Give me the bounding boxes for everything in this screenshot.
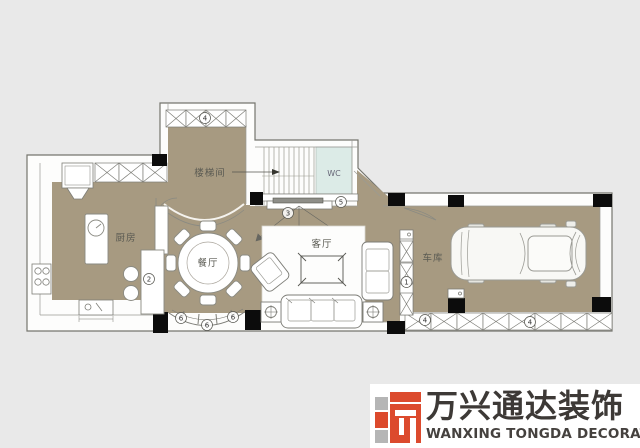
dining-chair bbox=[166, 255, 176, 271]
floor-plan-page: 厨房 餐厅 客厅 车库 楼梯间 WC 4 3 5 2 1 6 6 6 4 4 万… bbox=[0, 0, 640, 448]
dining-label: 餐厅 bbox=[197, 257, 218, 269]
garage-cabinet-strip bbox=[400, 230, 413, 315]
marker-bar-counter: 2 bbox=[144, 274, 155, 285]
marker-tower-window: 4 bbox=[200, 113, 211, 124]
dining-chair bbox=[200, 295, 216, 305]
marker-wc-door: 5 bbox=[336, 197, 347, 208]
stairwell-label: 楼梯间 bbox=[194, 167, 226, 179]
sofa bbox=[281, 295, 362, 328]
marker-bay-right: 6 bbox=[228, 312, 239, 323]
tv bbox=[273, 198, 323, 203]
garage-fixture bbox=[448, 289, 464, 298]
svg-text:6: 6 bbox=[231, 314, 236, 322]
brand-name-en: WANXING TONGDA DECORATION bbox=[426, 426, 638, 442]
svg-text:1: 1 bbox=[404, 279, 408, 287]
bar-stool bbox=[124, 286, 139, 301]
stove bbox=[32, 264, 51, 294]
svg-text:4: 4 bbox=[423, 317, 428, 325]
brand-name-cn: 万兴通达装饰 bbox=[426, 388, 638, 425]
marker-garage-cabinet: 1 bbox=[401, 277, 412, 288]
svg-text:4: 4 bbox=[528, 319, 533, 327]
marker-bay-left: 6 bbox=[176, 313, 187, 324]
car bbox=[451, 221, 586, 287]
dining-chair bbox=[240, 255, 250, 271]
brand-footer: 万兴通达装饰 WANXING TONGDA DECORATION bbox=[370, 384, 640, 448]
living-label: 客厅 bbox=[311, 238, 332, 250]
svg-text:3: 3 bbox=[286, 210, 290, 218]
marker-garage-window-right: 4 bbox=[525, 317, 536, 328]
marker-tv-wall: 3 bbox=[283, 208, 294, 219]
svg-text:2: 2 bbox=[147, 276, 151, 284]
wc-label: WC bbox=[327, 169, 341, 178]
entry-floor bbox=[357, 170, 390, 206]
svg-text:5: 5 bbox=[339, 199, 343, 207]
svg-text:6: 6 bbox=[205, 322, 210, 330]
side-table-right bbox=[363, 302, 383, 322]
floor-plan-drawing: 厨房 餐厅 客厅 车库 楼梯间 WC 4 3 5 2 1 6 6 6 4 4 bbox=[0, 0, 640, 448]
garage-window-band bbox=[405, 313, 612, 330]
coffee-table bbox=[298, 253, 346, 286]
brand-logo-icon bbox=[370, 384, 426, 448]
loveseat bbox=[362, 242, 393, 300]
marker-garage-window-left: 4 bbox=[420, 315, 431, 326]
svg-text:6: 6 bbox=[179, 315, 184, 323]
kitchen-island bbox=[85, 214, 108, 264]
svg-text:4: 4 bbox=[203, 115, 208, 123]
dining-chair bbox=[200, 221, 216, 231]
kitchen-label: 厨房 bbox=[115, 232, 136, 244]
stairwell-floor bbox=[168, 125, 246, 206]
bar-stool bbox=[124, 267, 139, 282]
marker-bay-center: 6 bbox=[202, 320, 213, 331]
car-roof bbox=[528, 236, 572, 271]
side-table-left bbox=[261, 302, 281, 322]
garage-label: 车库 bbox=[422, 252, 443, 264]
